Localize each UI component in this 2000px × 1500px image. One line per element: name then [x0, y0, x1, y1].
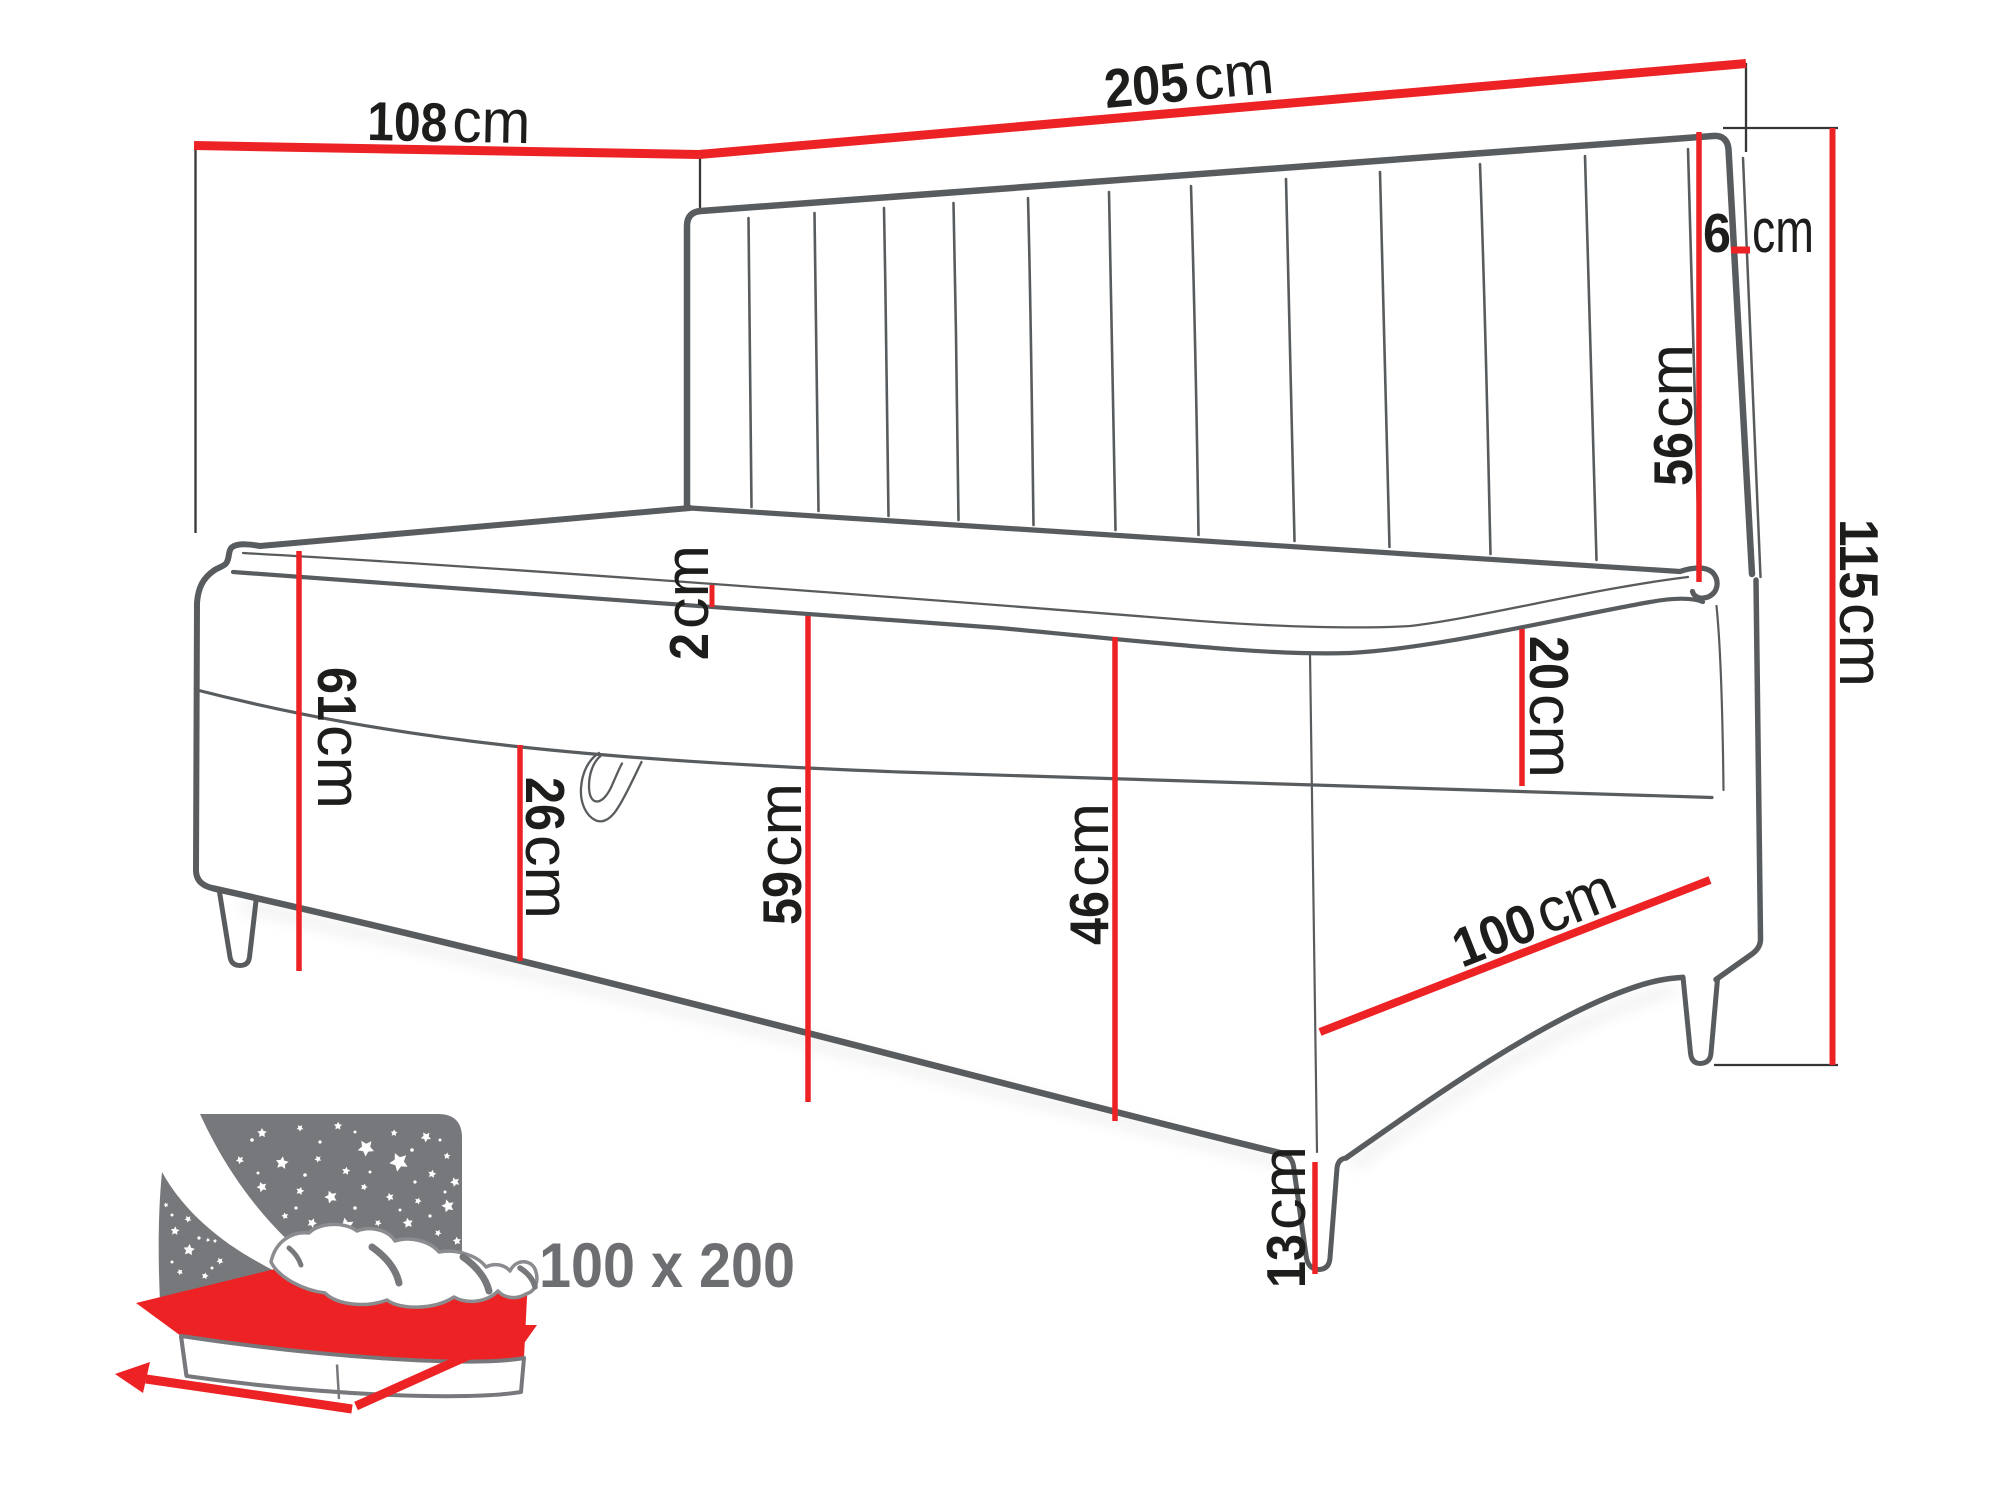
svg-text:2: 2 — [658, 633, 720, 660]
svg-text:20: 20 — [1518, 636, 1580, 690]
svg-text:108: 108 — [367, 90, 448, 154]
svg-text:cm: cm — [1637, 344, 1706, 428]
svg-text:cm: cm — [512, 835, 581, 919]
svg-text:59: 59 — [751, 871, 813, 925]
svg-text:46: 46 — [1058, 891, 1120, 945]
svg-text:6: 6 — [1703, 202, 1731, 264]
svg-text:115: 115 — [1828, 519, 1890, 599]
svg-text:cm: cm — [1826, 603, 1895, 687]
svg-text:61: 61 — [306, 667, 368, 721]
svg-text:cm: cm — [304, 725, 373, 809]
svg-text:205: 205 — [1101, 51, 1190, 120]
svg-text:cm: cm — [1516, 694, 1585, 778]
svg-text:100 x 200: 100 x 200 — [539, 1231, 795, 1301]
svg-text:cm: cm — [1250, 1146, 1319, 1230]
svg-text:cm: cm — [746, 783, 815, 867]
svg-text:cm: cm — [1752, 197, 1814, 266]
svg-text:cm: cm — [452, 87, 531, 157]
svg-text:13: 13 — [1255, 1234, 1317, 1288]
svg-text:cm: cm — [1053, 803, 1122, 887]
svg-text:56: 56 — [1642, 432, 1704, 486]
svg-text:cm: cm — [653, 545, 722, 629]
svg-text:26: 26 — [514, 777, 576, 831]
svg-text:cm: cm — [1191, 38, 1277, 114]
